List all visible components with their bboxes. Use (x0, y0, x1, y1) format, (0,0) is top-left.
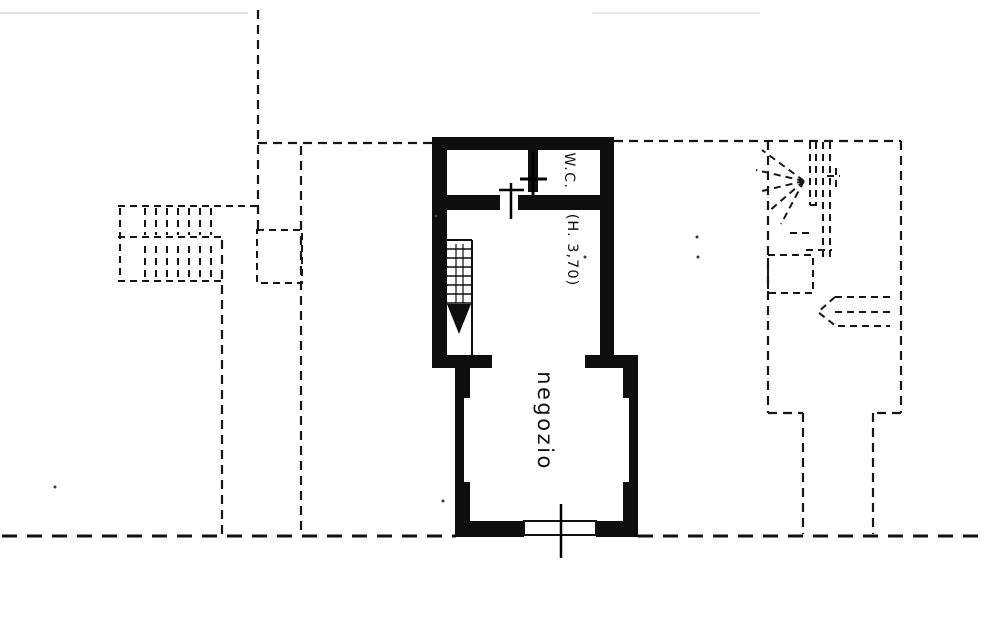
boundary-lines-left (222, 10, 432, 536)
left-staircase-dashed (118, 206, 257, 281)
wc-room-label: W.C. (561, 153, 577, 190)
floor-plan-canvas: W.C. (H. 3,70) negozio (0, 0, 989, 639)
subject-unit-walls (432, 137, 638, 537)
shaft-rectangle-dashed (257, 230, 302, 283)
scan-artifacts (0, 12, 760, 14)
stair-direction-arrow-icon (447, 304, 471, 334)
internal-staircase (447, 240, 472, 355)
ceiling-height-note: (H. 3,70) (564, 214, 580, 286)
floor-plan-drawing (0, 0, 989, 639)
right-neighbor-outline (614, 141, 901, 534)
right-winder-stair-dashed (756, 142, 893, 327)
shop-room-label: negozio (533, 371, 557, 471)
survey-cross-marks (499, 152, 561, 558)
